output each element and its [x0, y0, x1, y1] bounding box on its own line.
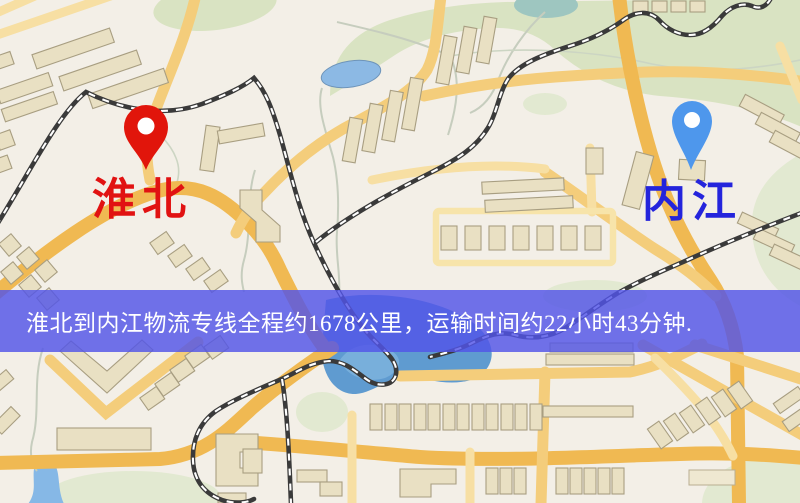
- destination-city-label: 内江: [642, 180, 742, 224]
- map-canvas: [0, 0, 800, 503]
- origin-pin-hole: [138, 118, 155, 135]
- route-info-banner: 淮北到内江物流专线全程约1678公里，运输时间约22小时43分钟.: [0, 290, 800, 352]
- logistics-route-map: 淮北 内江 淮北到内江物流专线全程约1678公里，运输时间约22小时43分钟.: [0, 0, 800, 503]
- origin-pin-icon: [124, 105, 168, 170]
- route-info-text: 淮北到内江物流专线全程约1678公里，运输时间约22小时43分钟.: [26, 304, 692, 338]
- destination-pin-hole: [684, 112, 700, 128]
- destination-pin-icon: [672, 101, 712, 170]
- origin-city-label: 淮北: [92, 178, 192, 222]
